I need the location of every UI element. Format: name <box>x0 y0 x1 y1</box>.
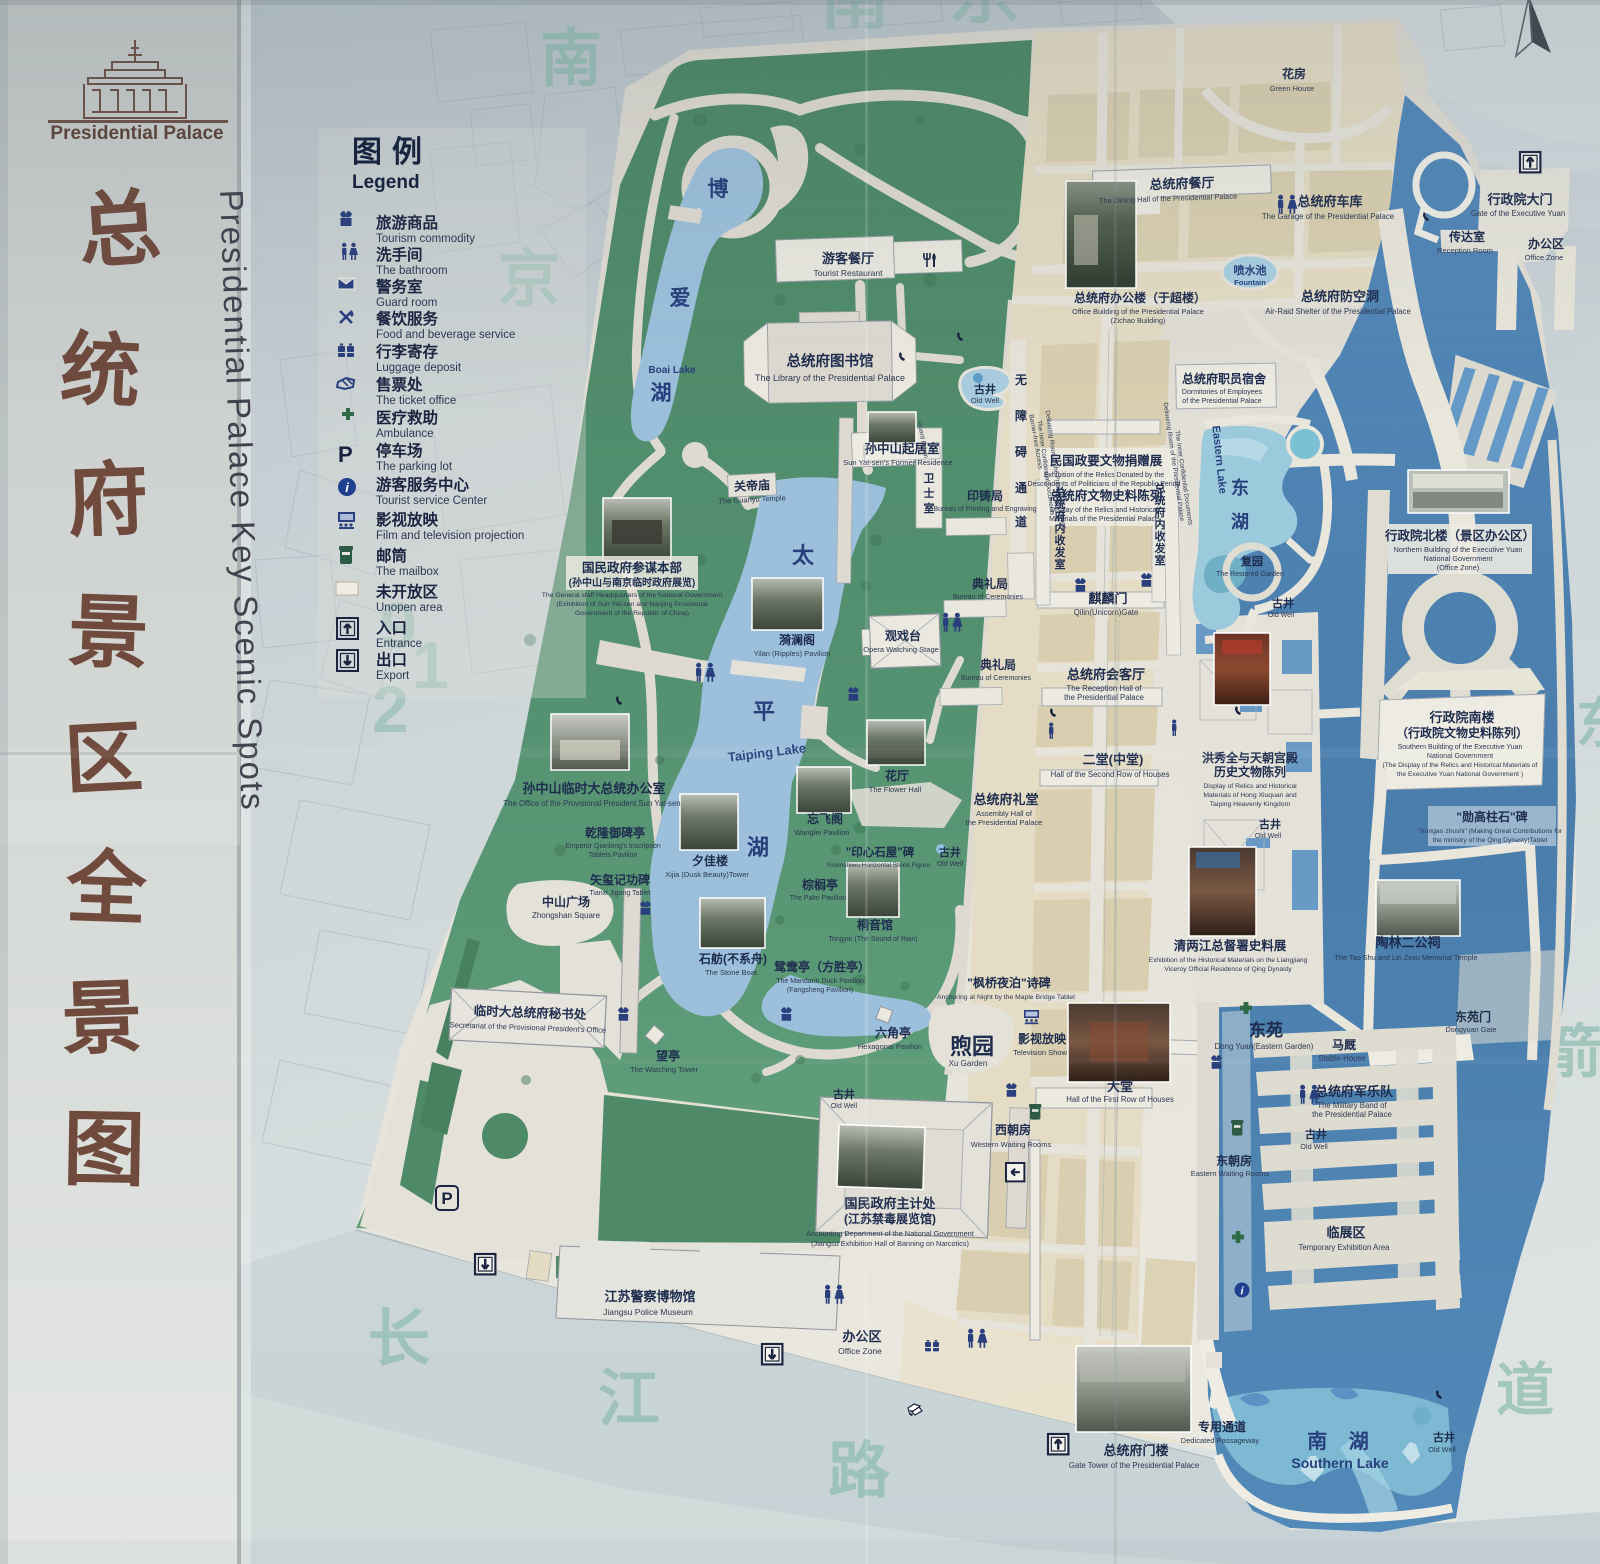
svg-text:东: 东 <box>1576 694 1600 754</box>
svg-text:游客服务中心: 游客服务中心 <box>376 475 470 494</box>
svg-text:长: 长 <box>368 1305 430 1374</box>
svg-text:卫: 卫 <box>924 472 935 485</box>
svg-text:The Military Band of: The Military Band of <box>1317 1101 1387 1110</box>
svg-text:Taiping Heavenly Kingdom: Taiping Heavenly Kingdom <box>1210 801 1291 808</box>
svg-text:Display of the Relics and Hist: Display of the Relics and Historical <box>1050 507 1158 514</box>
svg-text:National Government: National Government <box>1424 554 1493 563</box>
svg-text:The Palm Pavilion: The Palm Pavilion <box>790 895 847 902</box>
svg-text:(Exhibition of Sun Yat-sen and: (Exhibition of Sun Yat-sen and Nanjing P… <box>556 601 708 608</box>
svg-text:室: 室 <box>1155 553 1166 567</box>
svg-text:总: 总 <box>1055 485 1066 499</box>
svg-text:The Flower Hall: The Flower Hall <box>869 785 922 794</box>
svg-text:Entrance: Entrance <box>376 638 422 650</box>
svg-text:府: 府 <box>1055 509 1066 523</box>
svg-text:士: 士 <box>924 486 935 500</box>
svg-text:湖: 湖 <box>1231 512 1249 532</box>
svg-text:发: 发 <box>1154 541 1167 555</box>
svg-text:古井: 古井 <box>1272 596 1294 610</box>
svg-text:Bureau of Printing and Engravi: Bureau of Printing and Engraving <box>933 506 1036 513</box>
svg-text:The General staff Headquarters: The General staff Headquarters of the Na… <box>542 592 723 599</box>
svg-text:Wanglei Pavilion: Wanglei Pavilion <box>794 828 849 837</box>
svg-text:Display of Relics and Historic: Display of Relics and Historical <box>1203 783 1297 790</box>
svg-text:Hall of the First Row of House: Hall of the First Row of Houses <box>1066 1095 1174 1104</box>
svg-text:Old Well: Old Well <box>831 1103 858 1110</box>
svg-text:南 湖: 南 湖 <box>1307 1430 1377 1453</box>
svg-text:Zhongshan Square: Zhongshan Square <box>532 911 601 920</box>
svg-text:总统府会客厅: 总统府会客厅 <box>1067 667 1145 682</box>
svg-text:Dongyuan Gate: Dongyuan Gate <box>1445 1025 1496 1034</box>
svg-text:典礼局: 典礼局 <box>980 657 1016 672</box>
svg-text:Sun Yat-sen's Former Residence: Sun Yat-sen's Former Residence <box>843 458 953 467</box>
svg-text:Eastern Waiting Rooms: Eastern Waiting Rooms <box>1191 1169 1270 1178</box>
svg-text:Southern Lake: Southern Lake <box>1291 1455 1388 1471</box>
svg-text:陶林二公祠: 陶林二公祠 <box>1375 935 1440 950</box>
svg-text:总统府军乐队: 总统府军乐队 <box>1315 1084 1394 1099</box>
svg-text:Accounting Department of the N: Accounting Department of the National Go… <box>806 1229 974 1238</box>
svg-text:孙中山临时大总统办公室: 孙中山临时大总统办公室 <box>522 781 665 796</box>
svg-text:Office Zone: Office Zone <box>838 1346 882 1356</box>
svg-text:(Fangsheng Pavilion): (Fangsheng Pavilion) <box>787 987 853 994</box>
svg-text:入口: 入口 <box>376 619 407 637</box>
svg-text:The Restored Garden: The Restored Garden <box>1216 571 1284 578</box>
svg-text:观戏台: 观戏台 <box>885 628 921 643</box>
svg-text:东苑门: 东苑门 <box>1455 1009 1491 1024</box>
svg-text:忘飞阁: 忘飞阁 <box>807 811 843 826</box>
svg-text:"枫桥夜泊"诗碑: "枫桥夜泊"诗碑 <box>967 975 1050 990</box>
svg-text:太: 太 <box>792 543 815 568</box>
svg-text:The Mandarin Duck Pavilion: The Mandarin Duck Pavilion <box>776 978 864 985</box>
svg-text:麒麟门: 麒麟门 <box>1088 591 1127 606</box>
svg-text:清两江总督署史料展: 清两江总督署史料展 <box>1174 938 1287 953</box>
svg-text:印铸局: 印铸局 <box>967 488 1003 503</box>
svg-text:马厩: 马厩 <box>1332 1037 1356 1052</box>
svg-text:"Xungao zhushi" (Making Great: "Xungao zhushi" (Making Great Contributi… <box>1418 828 1563 835</box>
svg-text:临展区: 临展区 <box>1326 1225 1365 1240</box>
svg-text:古井: 古井 <box>1433 1430 1455 1444</box>
svg-text:出口: 出口 <box>376 650 407 669</box>
svg-text:Emperor Qianlong's Inscription: Emperor Qianlong's Inscription <box>565 843 661 850</box>
svg-text:i: i <box>345 480 349 495</box>
svg-text:Viceroy Official Residence of: Viceroy Official Residence of Qing Dynas… <box>1164 966 1292 973</box>
svg-text:"印心石屋"碑: "印心石屋"碑 <box>846 845 915 859</box>
svg-text:The mailbox: The mailbox <box>376 566 439 578</box>
svg-text:府: 府 <box>1155 505 1166 519</box>
svg-text:专用通道: 专用通道 <box>1198 1419 1246 1434</box>
svg-text:The parking lot: The parking lot <box>376 461 453 473</box>
svg-text:江苏警察博物馆: 江苏警察博物馆 <box>604 1289 695 1304</box>
svg-text:关帝庙: 关帝庙 <box>734 477 771 494</box>
svg-text:the Presidential Palace: the Presidential Palace <box>1064 693 1144 702</box>
svg-text:内: 内 <box>1055 521 1066 535</box>
svg-text:石舫(不系舟): 石舫(不系舟) <box>698 951 767 966</box>
svg-text:漪澜阁: 漪澜阁 <box>779 632 815 647</box>
svg-text:发: 发 <box>1054 545 1067 559</box>
svg-text:The Stone Boat: The Stone Boat <box>705 968 758 977</box>
svg-text:Jiangsu Police Museum: Jiangsu Police Museum <box>603 1307 693 1317</box>
svg-text:Exhibition of the Historical M: Exhibition of the Historical Materials o… <box>1149 957 1308 964</box>
svg-text:(The Display of the Relics and: (The Display of the Relics and Historica… <box>1383 762 1538 769</box>
svg-text:Tablets Pavilion: Tablets Pavilion <box>589 852 638 859</box>
svg-text:停车场: 停车场 <box>376 441 423 460</box>
svg-text:Bureau of Ceremonies: Bureau of Ceremonies <box>953 594 1024 601</box>
svg-text:The Watching Tower: The Watching Tower <box>630 1065 698 1074</box>
svg-text:"勋高柱石"碑: "勋高柱石"碑 <box>1456 809 1527 824</box>
svg-text:Gate Tower of the Presidential: Gate Tower of the Presidential Palace <box>1069 1461 1199 1470</box>
svg-text:Bureau of Ceremonies: Bureau of Ceremonies <box>961 675 1032 682</box>
svg-text:Government of the Republic of: Government of the Republic of China) <box>575 610 689 617</box>
svg-text:路: 路 <box>828 1437 891 1506</box>
svg-text:Hall of the Second Row of Hous: Hall of the Second Row of Houses <box>1051 770 1170 779</box>
svg-text:煦园: 煦园 <box>950 1034 994 1059</box>
svg-text:总统府礼堂: 总统府礼堂 <box>973 792 1038 807</box>
svg-text:景: 景 <box>67 587 150 679</box>
svg-text:Old Well: Old Well <box>1255 833 1282 840</box>
svg-text:矢玺记功碑: 矢玺记功碑 <box>590 872 650 887</box>
svg-text:道: 道 <box>1496 1358 1554 1423</box>
svg-text:复园: 复园 <box>1240 554 1263 568</box>
svg-text:Dedicated Passageway: Dedicated Passageway <box>1181 1436 1260 1445</box>
svg-text:花厅: 花厅 <box>885 768 909 783</box>
svg-text:全: 全 <box>64 843 149 935</box>
svg-text:Export: Export <box>376 670 410 682</box>
svg-text:未开放区: 未开放区 <box>375 582 439 601</box>
svg-text:收: 收 <box>1055 533 1066 547</box>
svg-text:（行政院文物史料陈列）: （行政院文物史料陈列） <box>1396 725 1528 740</box>
svg-text:平: 平 <box>753 699 775 724</box>
svg-text:六角亭: 六角亭 <box>875 1025 911 1040</box>
svg-text:道: 道 <box>1015 514 1027 529</box>
svg-text:古井: 古井 <box>1305 1127 1327 1141</box>
svg-text:统: 统 <box>1055 497 1066 511</box>
svg-text:The Tao Shu and Lin Zexu Memor: The Tao Shu and Lin Zexu Memorial Temple <box>1335 953 1478 962</box>
svg-text:Dong Yuan(Eastern Garden): Dong Yuan(Eastern Garden) <box>1215 1042 1314 1051</box>
svg-text:Assembly Hall of: Assembly Hall of <box>976 809 1033 818</box>
svg-text:Materials of Hong Xiuquan and: Materials of Hong Xiuquan and <box>1203 792 1297 799</box>
svg-text:行政院南楼: 行政院南楼 <box>1428 710 1494 725</box>
svg-text:Old Well: Old Well <box>1428 1445 1456 1454</box>
svg-text:Old Well: Old Well <box>937 861 964 868</box>
svg-text:Old Well: Old Well <box>1300 1142 1328 1151</box>
svg-text:碍: 碍 <box>1015 445 1027 459</box>
svg-text:国民政府参谋本部: 国民政府参谋本部 <box>582 560 683 575</box>
svg-text:Tianxi Jigong Tablet: Tianxi Jigong Tablet <box>589 890 651 897</box>
svg-text:Yinxinshiwu Horizontal Stone F: Yinxinshiwu Horizontal Stone Figure <box>826 862 931 869</box>
svg-text:民国政要文物捐赠展: 民国政要文物捐赠展 <box>1050 453 1163 468</box>
svg-text:P: P <box>338 442 353 467</box>
svg-text:棕榈亭: 棕榈亭 <box>801 877 838 892</box>
svg-text:国民政府主计处: 国民政府主计处 <box>844 1196 936 1211</box>
svg-text:the ministry of the Qing Dynas: the ministry of the Qing Dynasty)Tablet <box>1433 837 1548 844</box>
svg-text:府: 府 <box>66 455 149 547</box>
svg-text:Unopen area: Unopen area <box>376 602 443 614</box>
svg-text:区: 区 <box>62 713 145 805</box>
svg-text:东朝房: 东朝房 <box>1216 1153 1252 1168</box>
svg-text:东苑: 东苑 <box>1249 1020 1283 1040</box>
svg-text:Ambulance: Ambulance <box>376 428 434 440</box>
svg-text:东: 东 <box>1231 477 1249 498</box>
svg-text:(Jiangsu Exhibition Hall of Ba: (Jiangsu Exhibition Hall of Banning on N… <box>811 1239 969 1248</box>
svg-text:收: 收 <box>1155 529 1166 543</box>
svg-text:古井: 古井 <box>1259 817 1281 831</box>
svg-text:办公区: 办公区 <box>842 1329 881 1344</box>
svg-text:Exhibition of the Relics Donat: Exhibition of the Relics Donated by the <box>1044 472 1164 479</box>
svg-text:Film and television projection: Film and television projection <box>376 530 524 542</box>
svg-text:室: 室 <box>1055 557 1066 571</box>
svg-text:湖: 湖 <box>747 835 769 860</box>
svg-text:统: 统 <box>1155 493 1166 507</box>
svg-text:Northern Building of the Execu: Northern Building of the Executive Yuan <box>1394 545 1523 554</box>
svg-text:Qilin(Unicorn)Gate: Qilin(Unicorn)Gate <box>1074 608 1139 617</box>
svg-text:桐音馆: 桐音馆 <box>857 917 893 932</box>
svg-text:Old Well: Old Well <box>1268 612 1295 619</box>
svg-text:the Executive Yuan National Go: the Executive Yuan National Government ) <box>1397 771 1523 778</box>
svg-text:Television Show: Television Show <box>1013 1048 1067 1057</box>
svg-text:总统府文物史料陈列: 总统府文物史料陈列 <box>1050 488 1163 503</box>
svg-text:The Reception Hall of: The Reception Hall of <box>1067 684 1143 693</box>
svg-text:Anchoring at Night by the Mapl: Anchoring at Night by the Maple Bridge T… <box>937 994 1075 1001</box>
svg-text:影视放映: 影视放映 <box>1018 1031 1067 1046</box>
svg-text:图: 图 <box>62 1104 146 1196</box>
svg-text:Opera Watching Stage: Opera Watching Stage <box>863 645 939 654</box>
svg-text:西朝房: 西朝房 <box>995 1122 1031 1137</box>
svg-text:大堂: 大堂 <box>1107 1079 1133 1094</box>
svg-text:The Office of the Provisional: The Office of the Provisional President … <box>503 799 680 808</box>
svg-text:Temporary Exhibition Area: Temporary Exhibition Area <box>1298 1243 1390 1252</box>
svg-text:影视放映: 影视放映 <box>376 510 439 529</box>
svg-text:邮筒: 邮筒 <box>376 546 407 565</box>
svg-text:Xijia (Dusk Beauty)Tower: Xijia (Dusk Beauty)Tower <box>665 870 749 879</box>
svg-text:古井: 古井 <box>939 845 961 859</box>
svg-text:(Office Zone): (Office Zone) <box>1437 563 1479 572</box>
svg-text:Western Waiting Rooms: Western Waiting Rooms <box>971 1140 1052 1149</box>
svg-text:夕佳楼: 夕佳楼 <box>692 853 728 868</box>
svg-text:历史文物陈列: 历史文物陈列 <box>1214 764 1286 779</box>
svg-text:中山广场: 中山广场 <box>542 894 590 909</box>
svg-text:the Presidential Palace: the Presidential Palace <box>966 818 1043 827</box>
svg-text:Tourist service Center: Tourist service Center <box>376 495 487 507</box>
svg-text:通: 通 <box>1015 480 1027 495</box>
svg-text:景: 景 <box>60 973 143 1065</box>
svg-text:Yilan (Ripples) Pavilion: Yilan (Ripples) Pavilion <box>754 649 831 658</box>
svg-text:行政院北楼（景区办公区）: 行政院北楼（景区办公区） <box>1384 528 1535 543</box>
svg-text:古井: 古井 <box>833 1087 855 1101</box>
svg-text:江: 江 <box>598 1365 660 1434</box>
svg-text:典礼局: 典礼局 <box>972 576 1008 591</box>
svg-text:鸳鸯亭（方胜亭）: 鸳鸯亭（方胜亭） <box>774 959 870 974</box>
svg-text:Tongyin (The Sound of Rain): Tongyin (The Sound of Rain) <box>828 936 917 943</box>
svg-text:P: P <box>441 1189 452 1208</box>
svg-text:乾隆御碑亭: 乾隆御碑亭 <box>585 825 645 840</box>
svg-text:总: 总 <box>1155 481 1166 495</box>
svg-text:内: 内 <box>1155 517 1166 531</box>
svg-text:(孙中山与南京临时政府展览): (孙中山与南京临时政府展览) <box>569 576 696 589</box>
svg-text:(江苏禁毒展览馆): (江苏禁毒展览馆) <box>844 1211 936 1226</box>
svg-text:the Presidential Palace: the Presidential Palace <box>1312 1110 1392 1119</box>
svg-text:总统府门楼: 总统府门楼 <box>1103 1443 1168 1458</box>
